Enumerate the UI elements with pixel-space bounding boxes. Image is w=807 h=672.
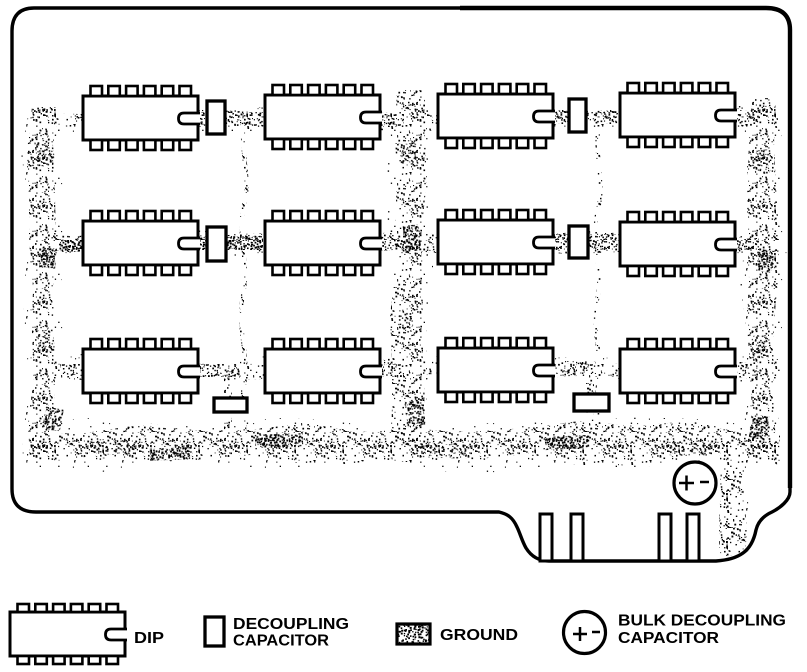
svg-text:BULK DECOUPLING: BULK DECOUPLING [618, 613, 786, 630]
svg-text:CAPACITOR: CAPACITOR [618, 630, 719, 647]
svg-text:DECOUPLING: DECOUPLING [233, 616, 349, 633]
svg-text:DIP: DIP [134, 630, 164, 647]
svg-text:GROUND: GROUND [440, 627, 518, 644]
svg-text:CAPACITOR: CAPACITOR [233, 633, 329, 650]
